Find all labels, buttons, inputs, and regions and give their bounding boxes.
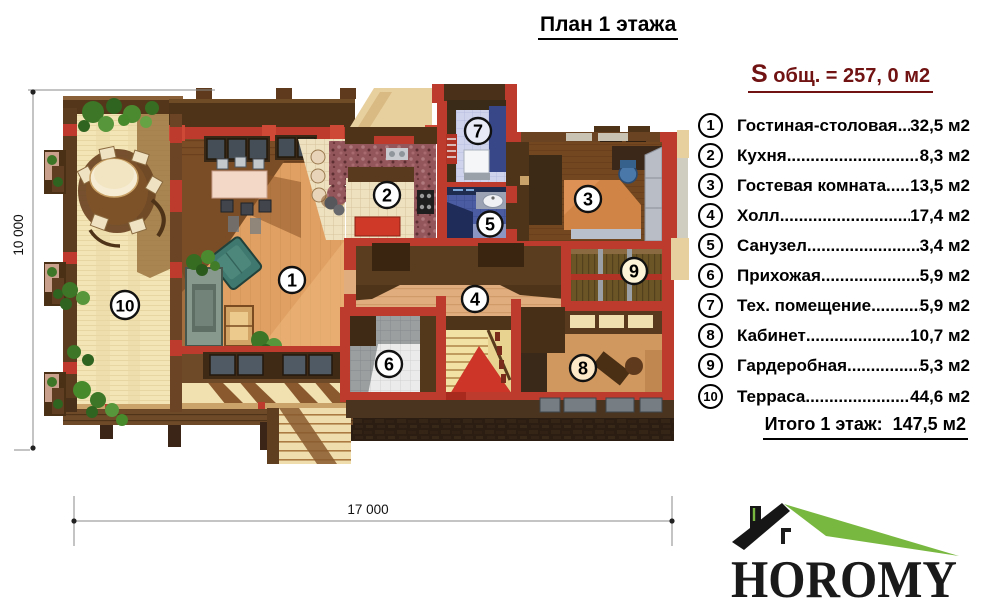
- svg-text:8: 8: [578, 359, 588, 379]
- svg-text:2: 2: [382, 186, 392, 206]
- svg-text:5: 5: [485, 215, 495, 235]
- svg-text:HOROMY: HOROMY: [731, 551, 957, 609]
- svg-text:9: 9: [629, 262, 639, 282]
- svg-text:3: 3: [583, 190, 593, 210]
- svg-text:10: 10: [116, 297, 135, 316]
- svg-text:4: 4: [470, 290, 480, 310]
- svg-text:17 000: 17 000: [347, 502, 388, 517]
- svg-text:6: 6: [384, 355, 394, 375]
- svg-text:10 000: 10 000: [11, 214, 26, 255]
- svg-text:7: 7: [473, 122, 483, 142]
- svg-text:1: 1: [287, 271, 297, 291]
